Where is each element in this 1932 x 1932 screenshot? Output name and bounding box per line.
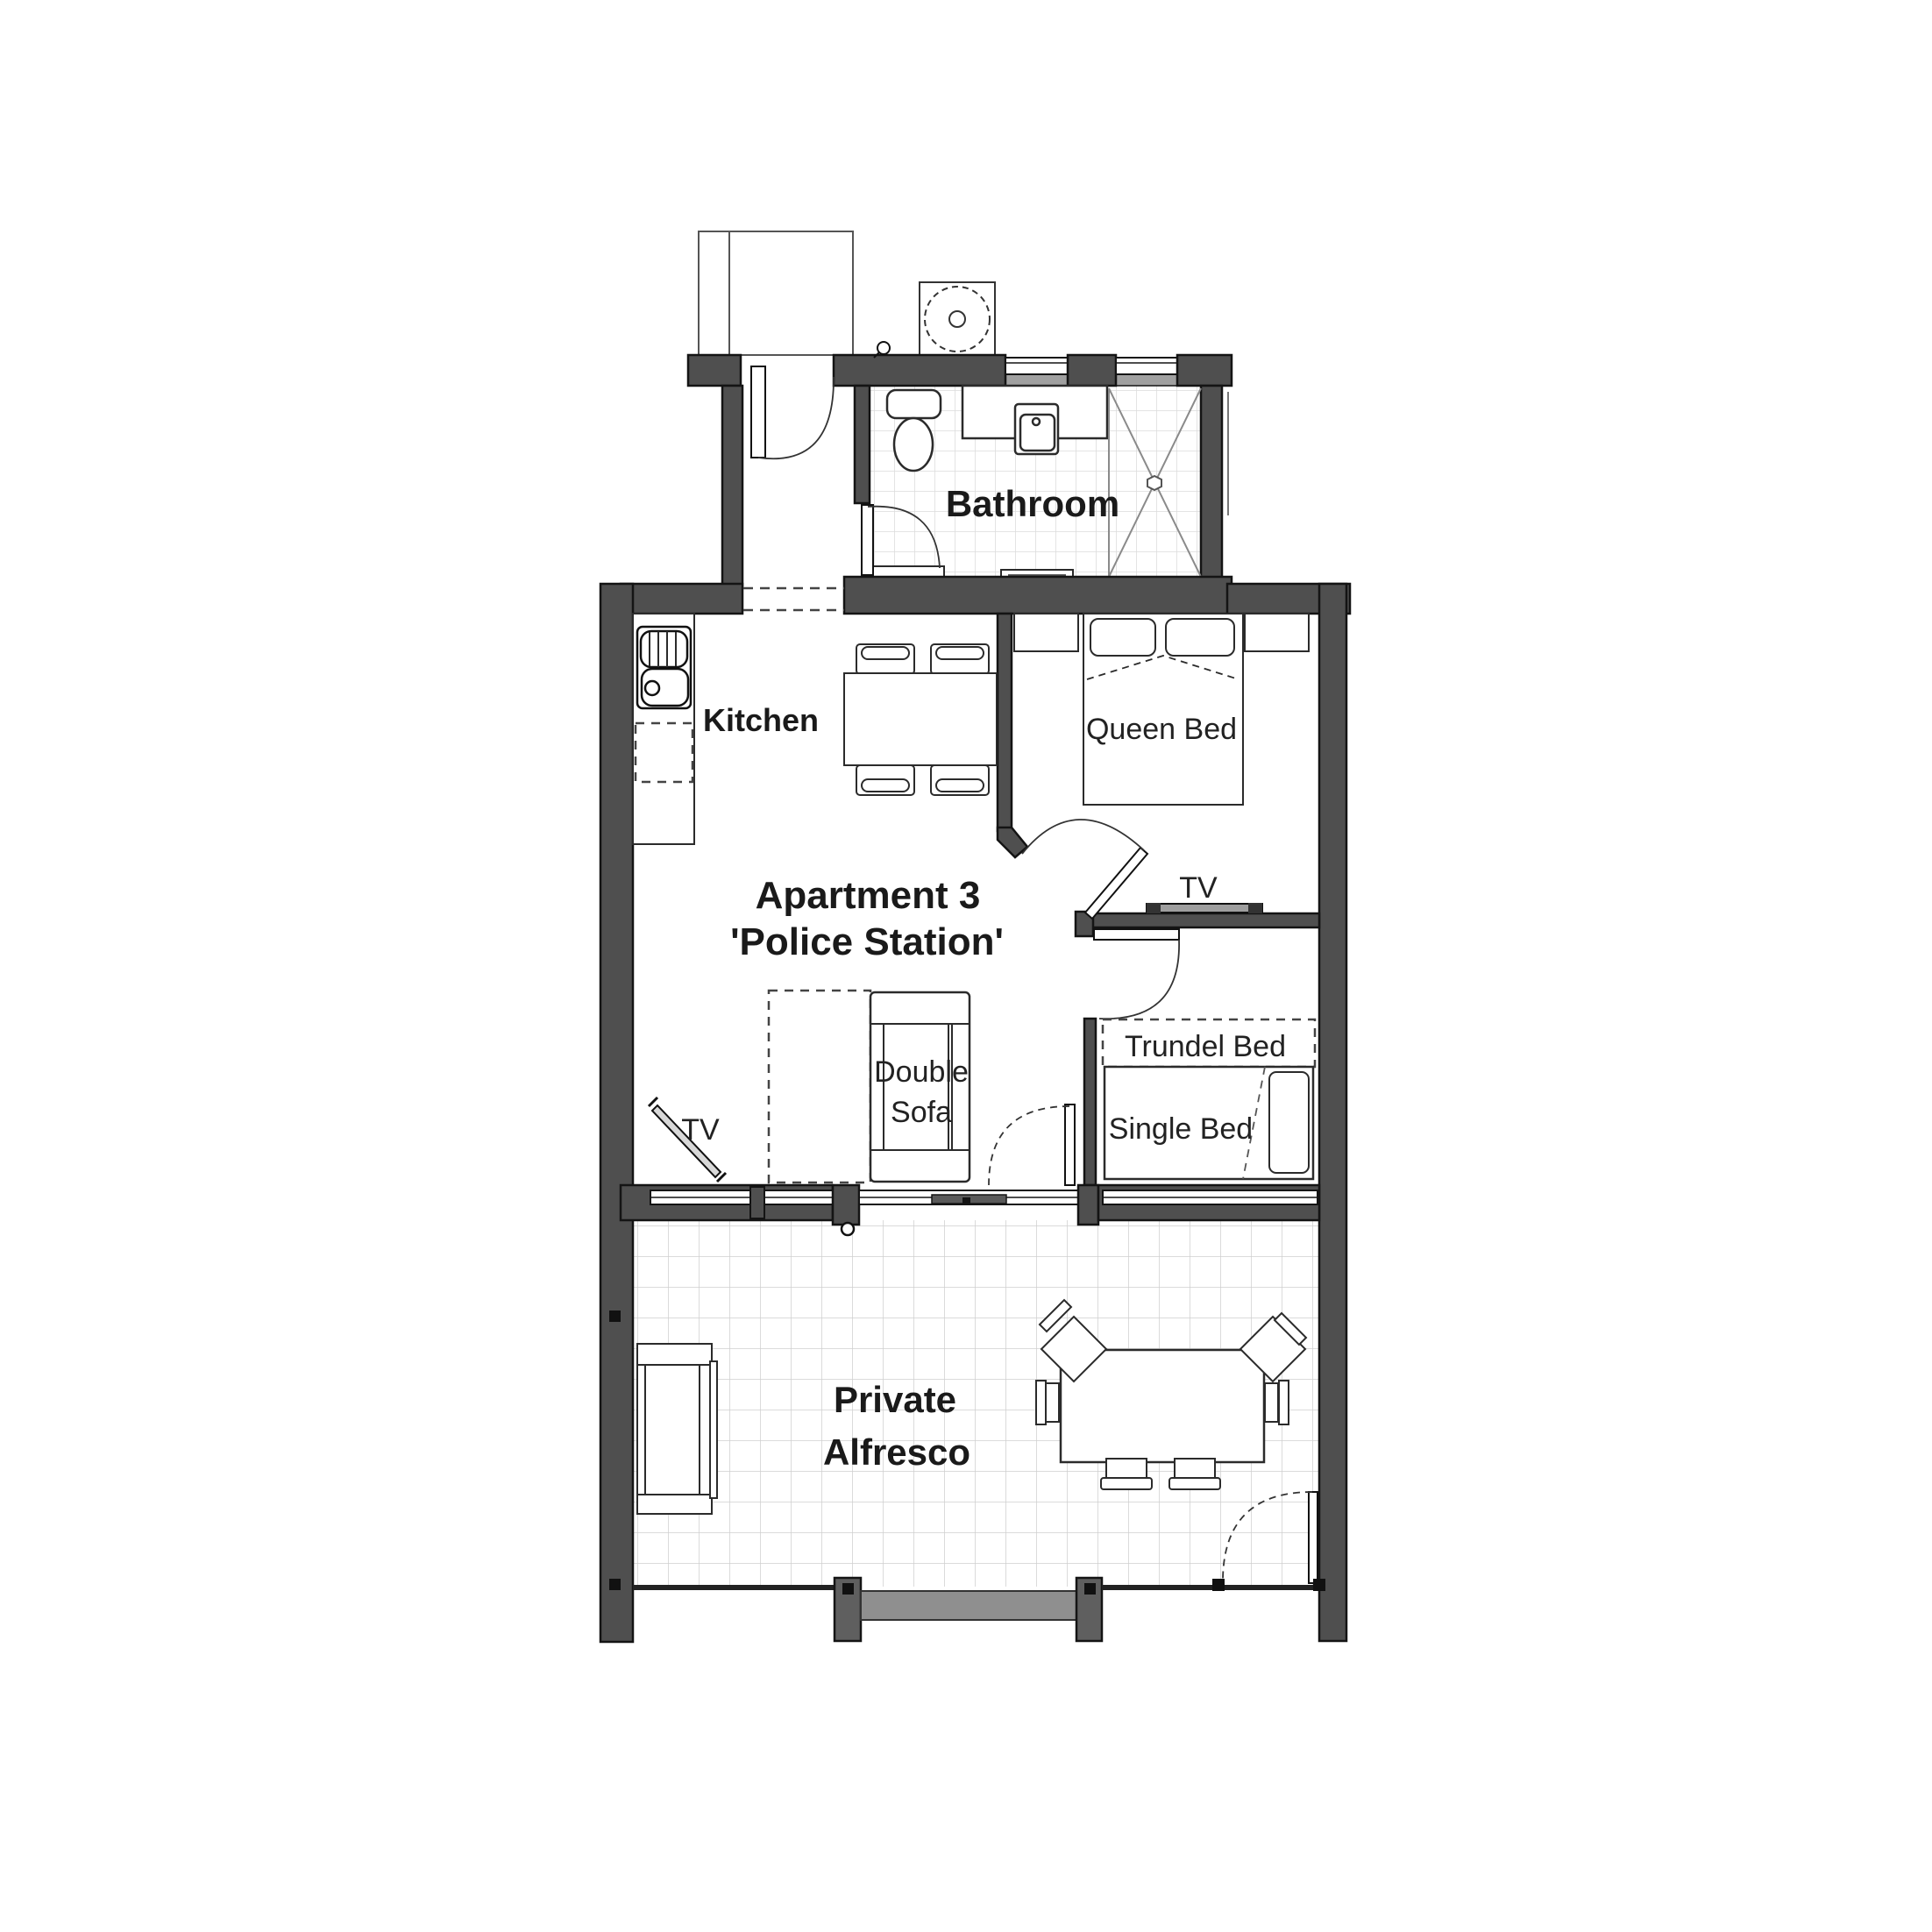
wall-bathroom-top-main — [834, 355, 1005, 386]
bedroom-door — [1022, 820, 1147, 919]
kitchen-sink — [637, 627, 691, 708]
double-sofa-label-line2: Sofa — [891, 1096, 952, 1129]
wall-bedroom-divider — [998, 614, 1012, 831]
sink-drainer — [641, 631, 687, 667]
alfresco-chair-side — [1036, 1381, 1059, 1424]
bathroom-window-1 — [1005, 358, 1068, 374]
fastener-mark — [1212, 1579, 1225, 1591]
alfresco-step — [861, 1591, 1076, 1620]
dining-table — [844, 673, 997, 765]
single-bed-label: Single Bed — [1109, 1112, 1253, 1146]
queen-bed-label: Queen Bed — [1086, 713, 1237, 746]
alfresco-chair-bottom — [1101, 1459, 1152, 1489]
wall-pillar-entry-left — [688, 355, 741, 386]
fastener-mark — [1084, 1583, 1096, 1595]
shower-drain — [1147, 476, 1161, 490]
queen-pillow — [1166, 619, 1234, 656]
alfresco-label-line1: Private — [834, 1379, 956, 1420]
title-line2: 'Police Station' — [730, 920, 1004, 963]
pillar-hook-icon — [842, 1223, 854, 1235]
double-sofa-label-line1: Double — [874, 1055, 969, 1089]
dining-set — [844, 644, 997, 795]
living-window-mullion — [750, 1187, 764, 1218]
wall-corner-bathroom-topright — [1177, 355, 1232, 386]
bedroom-door-leaf — [1085, 848, 1147, 919]
fastener-mark — [609, 1579, 621, 1590]
entry-door-swing-arc — [758, 377, 834, 458]
single-bed-pillow — [1269, 1072, 1309, 1173]
bathroom-door-threshold — [870, 566, 944, 577]
wall-left-outer — [600, 584, 633, 1642]
alfresco-bench — [637, 1344, 717, 1514]
dining-chair — [931, 644, 989, 674]
floor-plan-page: Bathroom Kitchen Apartment 3 'Police Sta… — [0, 0, 1932, 1932]
sliding-door-handle — [962, 1197, 970, 1205]
entry-door-leaf — [751, 366, 765, 458]
wall-trundel-divider — [1084, 1019, 1096, 1185]
living-alfresco-door-arc — [989, 1106, 1069, 1185]
wall-pillar-slider-left — [833, 1185, 859, 1225]
washing-machine — [920, 282, 995, 355]
bedside-table — [1014, 614, 1078, 651]
entry-opening-dashes — [743, 588, 844, 610]
basin-drain — [1033, 418, 1040, 425]
wall-entry-corridor-left — [722, 386, 742, 586]
dining-chair — [856, 644, 914, 674]
wall-pillar-bathroom-mid — [1068, 355, 1116, 386]
bedroom-door-swing-arc — [1022, 820, 1144, 854]
living-alfresco-door — [989, 1105, 1075, 1185]
living-alfresco-door-leaf — [1065, 1105, 1075, 1185]
tv-living-label: TV — [681, 1113, 720, 1147]
alfresco-edge-left — [633, 1585, 835, 1590]
bathroom-top-structures — [699, 231, 995, 355]
sliding-door — [859, 1190, 1078, 1205]
fastener-mark — [609, 1310, 621, 1322]
queen-pillow — [1090, 619, 1155, 656]
alfresco-table — [1061, 1350, 1264, 1462]
kitchen-label: Kitchen — [703, 702, 819, 738]
tv-bedroom-label: TV — [1179, 871, 1218, 905]
bathroom-label: Bathroom — [946, 483, 1119, 524]
wall-pillar-slider-right — [1078, 1185, 1098, 1225]
wall-right-outer — [1319, 584, 1346, 1641]
alfresco-gate-leaf — [1309, 1492, 1318, 1583]
fastener-mark — [842, 1583, 854, 1595]
trundel-door-leaf — [1094, 929, 1179, 940]
tv-living-endcap — [649, 1097, 657, 1106]
trundel-door — [1094, 929, 1179, 1019]
dining-chair — [856, 765, 914, 795]
queen-bedroom — [1014, 614, 1309, 805]
wall-bathroom-right — [1201, 386, 1222, 592]
bedside-table — [1245, 614, 1309, 651]
alfresco-chair-bottom — [1169, 1459, 1220, 1489]
title-line1: Apartment 3 — [756, 874, 981, 917]
double-sofa-fold-out — [769, 991, 870, 1183]
wall-top-left-segment — [621, 584, 742, 614]
wall-top-main-segment — [844, 577, 1232, 614]
bathroom-window-2 — [1116, 358, 1177, 374]
linen-cupboard — [699, 231, 853, 355]
dining-chair — [931, 765, 989, 795]
wall-bathroom-left-stub — [855, 386, 870, 503]
bathroom-door-leaf — [862, 505, 873, 575]
sink-tap — [645, 681, 659, 695]
floor-plan-drawing: Bathroom Kitchen Apartment 3 'Police Sta… — [0, 0, 1932, 1932]
wall-tv-bedroom — [1087, 913, 1319, 927]
bathroom-top-wall — [688, 355, 1232, 386]
trundel-door-swing-arc — [1099, 940, 1179, 1019]
alfresco-label-line2: Alfresco — [823, 1431, 970, 1473]
trundel-bed-label: Trundel Bed — [1125, 1030, 1286, 1063]
kitchen-fixtures — [633, 614, 694, 844]
fastener-mark — [1313, 1579, 1325, 1591]
alfresco-chair-side — [1265, 1381, 1289, 1424]
alfresco-edge-right — [1102, 1585, 1319, 1590]
